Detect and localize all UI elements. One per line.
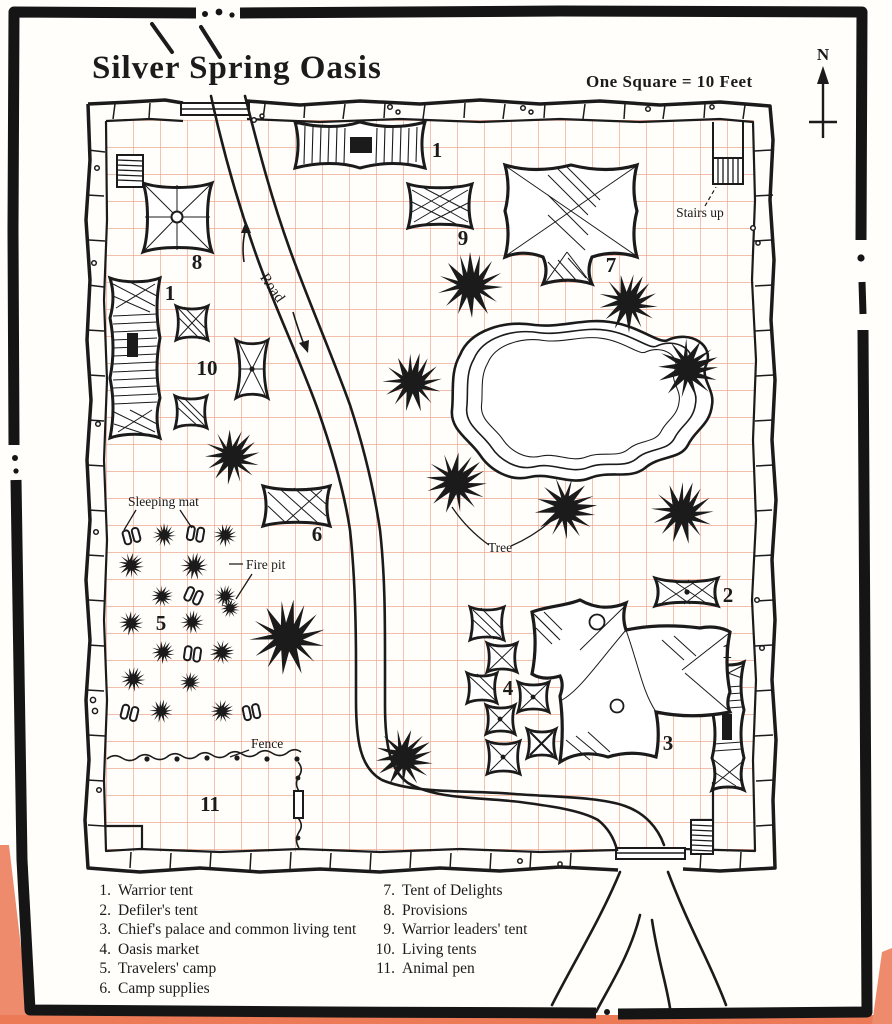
gate-south — [616, 848, 685, 859]
page-title: Silver Spring Oasis — [92, 50, 382, 87]
marker-defilers-tent: 2 — [723, 583, 734, 607]
legend-item: 3.Chief's palace and common living tent — [86, 920, 356, 940]
legend-label: Tent of Delights — [402, 882, 503, 899]
legend-number: 9. — [370, 920, 395, 940]
stairs-southeast — [691, 820, 713, 854]
marker-camp-supplies: 6 — [312, 522, 323, 546]
legend-label: Chief's palace and common living tent — [118, 921, 356, 938]
tent-defilers — [655, 578, 718, 606]
compass: N — [809, 45, 837, 138]
sleeping-mat-label: Sleeping mat — [128, 494, 199, 509]
legend-item: 2.Defiler's tent — [86, 901, 356, 921]
legend-number: 10. — [370, 940, 395, 960]
tree-label: Tree — [488, 540, 512, 555]
legend-label: Camp supplies — [118, 980, 210, 997]
compass-arrow-icon — [817, 66, 829, 84]
map-page: N — [0, 0, 892, 1024]
legend-number: 3. — [86, 920, 111, 940]
fence-label: Fence — [251, 736, 283, 751]
tent-door — [350, 137, 372, 153]
legend-number: 7. — [370, 881, 395, 901]
legend-label: Warrior leaders' tent — [402, 921, 527, 938]
compass-north-label: N — [817, 45, 830, 64]
legend-number: 8. — [370, 901, 395, 921]
legend-label: Travelers' camp — [118, 960, 216, 977]
stairs-northwest — [117, 155, 143, 187]
tent-provisions — [143, 183, 212, 252]
fence-gate — [294, 791, 303, 818]
tent-warrior-leaders — [408, 184, 472, 228]
legend-item: 5.Travelers' camp — [86, 959, 356, 979]
marker-warrior-tent-west: 1 — [165, 281, 176, 305]
legend-item: 6.Camp supplies — [86, 979, 356, 999]
legend-number: 5. — [86, 959, 111, 979]
legend-label: Defiler's tent — [118, 902, 198, 919]
legend-item: 4.Oasis market — [86, 940, 356, 960]
tent-warrior-west — [110, 278, 160, 438]
tent-door — [722, 714, 732, 740]
legend-label: Oasis market — [118, 941, 199, 958]
legend-number: 11. — [370, 959, 395, 979]
marker-warrior-tent-north: 1 — [432, 138, 443, 162]
legend-number: 2. — [86, 901, 111, 921]
marker-animal-pen: 11 — [200, 792, 220, 816]
tent-camp-supplies — [263, 486, 330, 526]
legend-column-left: 1.Warrior tent 2.Defiler's tent 3.Chief'… — [86, 881, 356, 999]
map-canvas: N — [0, 0, 892, 1024]
legend-column-right: 7.Tent of Delights 8.Provisions 9.Warrio… — [370, 881, 527, 979]
marker-chiefs-palace: 3 — [663, 731, 674, 755]
spring-pond — [452, 321, 713, 480]
legend-item: 1.Warrior tent — [86, 881, 356, 901]
marker-living-tents: 10 — [197, 356, 218, 380]
tent-warrior-north — [295, 122, 425, 168]
legend-label: Living tents — [402, 941, 476, 958]
tent-door — [127, 333, 138, 357]
marker-oasis-market: 4 — [503, 676, 514, 700]
legend-label: Animal pen — [402, 960, 475, 977]
marker-warrior-tent-east: 1 — [722, 639, 733, 663]
scale-label: One Square = 10 Feet — [586, 72, 753, 92]
legend-item: 7.Tent of Delights — [370, 881, 527, 901]
legend-item: 9.Warrior leaders' tent — [370, 920, 527, 940]
fire-pit-label: Fire pit — [246, 557, 286, 572]
legend-item: 11.Animal pen — [370, 959, 527, 979]
marker-tent-of-delights: 7 — [606, 253, 617, 277]
legend-number: 6. — [86, 979, 111, 999]
marker-warrior-leaders-tent: 9 — [458, 226, 469, 250]
legend-number: 4. — [86, 940, 111, 960]
legend-number: 1. — [86, 881, 111, 901]
legend-label: Warrior tent — [118, 882, 193, 899]
marker-provisions: 8 — [192, 250, 203, 274]
stairs-up-label: Stairs up — [676, 205, 724, 220]
legend-item: 10.Living tents — [370, 940, 527, 960]
legend-label: Provisions — [402, 902, 467, 919]
marker-travelers-camp: 5 — [156, 611, 167, 635]
legend-item: 8.Provisions — [370, 901, 527, 921]
